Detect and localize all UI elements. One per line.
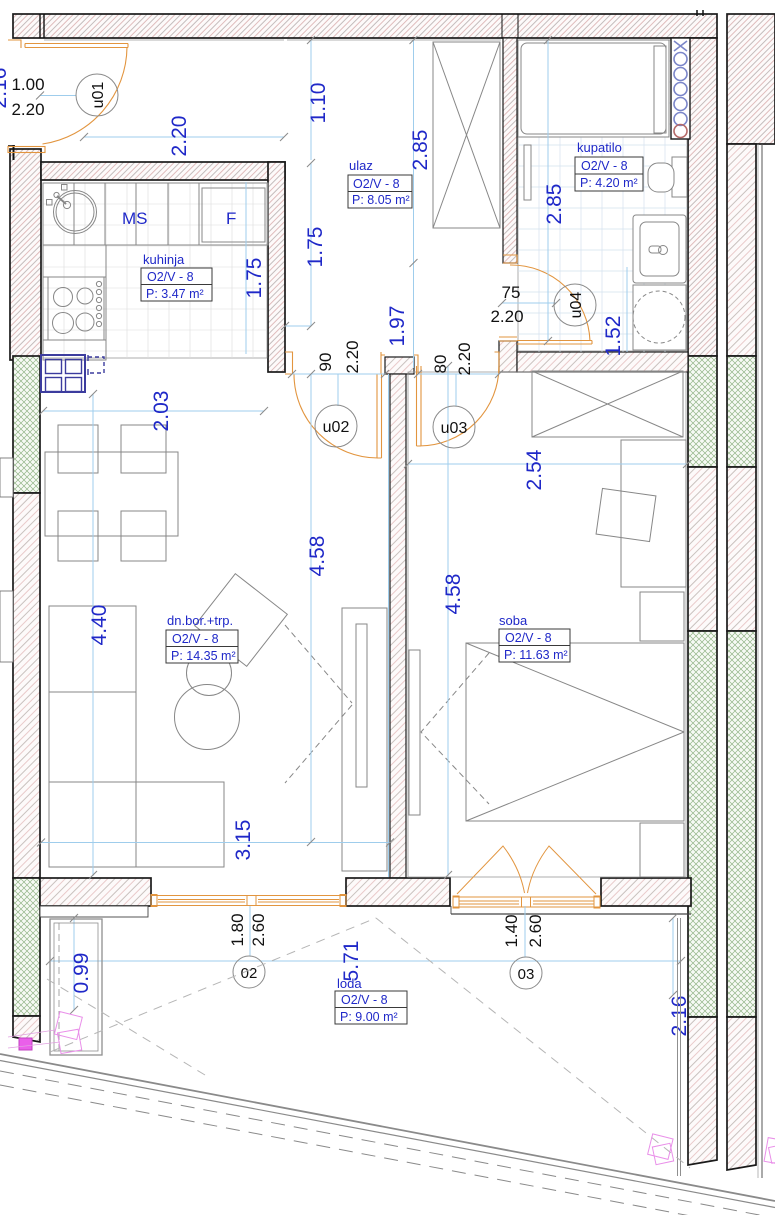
svg-text:u02: u02: [323, 419, 350, 436]
svg-text:MS: MS: [122, 209, 148, 228]
svg-text:1.80: 1.80: [228, 913, 247, 946]
svg-text:P: 9.00 m²: P: 9.00 m²: [340, 1010, 398, 1024]
svg-text:P: 14.35 m²: P: 14.35 m²: [171, 649, 236, 663]
svg-text:soba: soba: [499, 613, 528, 628]
svg-text:F: F: [226, 209, 236, 228]
svg-text:80: 80: [431, 355, 450, 374]
svg-text:2.16: 2.16: [0, 68, 11, 109]
svg-text:P: 4.20 m²: P: 4.20 m²: [580, 176, 638, 190]
svg-text:P: 8.05 m²: P: 8.05 m²: [352, 193, 410, 207]
svg-text:4.58: 4.58: [442, 574, 465, 615]
svg-text:0.99: 0.99: [70, 953, 93, 994]
svg-text:1.10: 1.10: [307, 83, 330, 124]
svg-text:02: 02: [241, 965, 258, 982]
svg-text:2.85: 2.85: [409, 130, 432, 171]
svg-text:2.54: 2.54: [523, 449, 546, 490]
svg-text:O2/V - 8: O2/V - 8: [353, 177, 400, 191]
svg-text:2.20: 2.20: [168, 116, 191, 157]
svg-text:O2/V - 8: O2/V - 8: [172, 632, 219, 646]
svg-text:kupatilo: kupatilo: [577, 140, 622, 155]
svg-text:2.16: 2.16: [668, 996, 691, 1037]
svg-text:2.20: 2.20: [343, 340, 362, 373]
svg-text:ulaz: ulaz: [349, 158, 373, 173]
svg-text:75: 75: [502, 283, 521, 302]
svg-text:O2/V - 8: O2/V - 8: [147, 270, 194, 284]
svg-text:1.52: 1.52: [602, 316, 625, 357]
svg-text:u04: u04: [568, 292, 585, 319]
svg-text:1.75: 1.75: [304, 227, 327, 268]
svg-text:2.20: 2.20: [490, 307, 523, 326]
svg-text:2.60: 2.60: [249, 913, 268, 946]
svg-text:1.97: 1.97: [386, 306, 409, 347]
svg-text:2.20: 2.20: [11, 100, 44, 119]
svg-text:loda: loda: [337, 976, 362, 991]
svg-text:2.03: 2.03: [150, 391, 173, 432]
svg-text:4.58: 4.58: [306, 536, 329, 577]
svg-text:kuhinja: kuhinja: [143, 252, 185, 267]
svg-text:P: 3.47 m²: P: 3.47 m²: [146, 287, 204, 301]
svg-text:O2/V - 8: O2/V - 8: [341, 993, 388, 1007]
svg-text:P: 11.63 m²: P: 11.63 m²: [504, 648, 568, 662]
svg-text:90: 90: [316, 353, 335, 372]
svg-text:2.20: 2.20: [455, 342, 474, 375]
svg-text:2.85: 2.85: [543, 184, 566, 225]
svg-text:1.75: 1.75: [243, 258, 266, 299]
svg-text:u01: u01: [90, 82, 107, 109]
svg-text:O2/V - 8: O2/V - 8: [581, 159, 628, 173]
svg-text:03: 03: [518, 966, 535, 983]
svg-text:u03: u03: [441, 420, 468, 437]
svg-text:2.60: 2.60: [526, 914, 545, 947]
svg-text:3.15: 3.15: [232, 820, 255, 861]
svg-text:4.40: 4.40: [88, 605, 111, 646]
svg-text:1.40: 1.40: [502, 914, 521, 947]
svg-text:O2/V - 8: O2/V - 8: [505, 631, 552, 645]
svg-text:1.00: 1.00: [11, 75, 44, 94]
svg-text:dn.bor.+trp.: dn.bor.+trp.: [167, 613, 233, 628]
